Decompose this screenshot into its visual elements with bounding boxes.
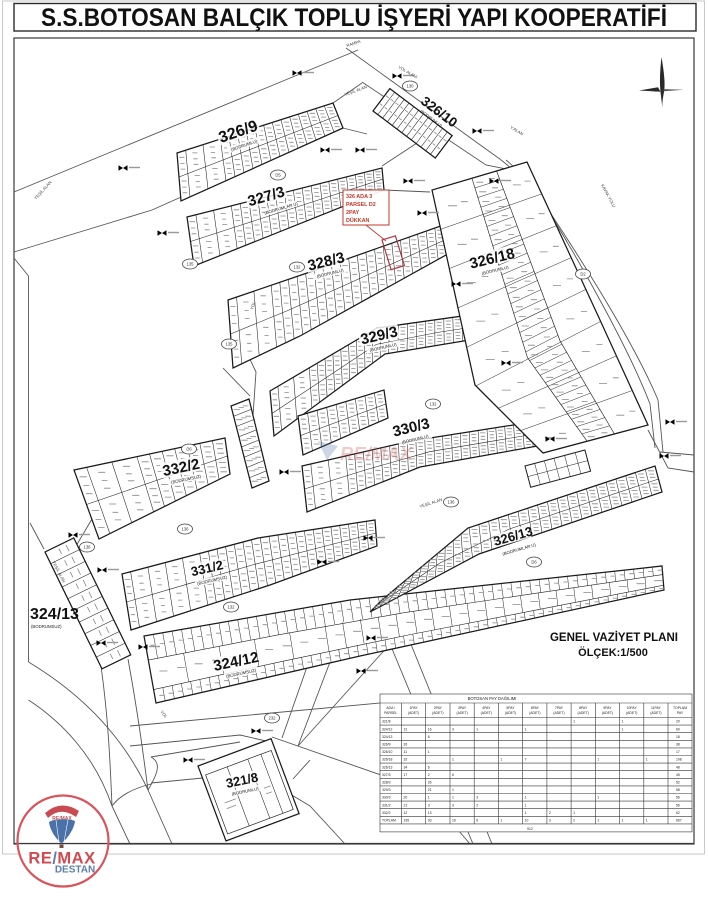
svg-text:1: 1	[500, 819, 502, 823]
svg-text:1: 1	[500, 758, 502, 762]
svg-text:32: 32	[404, 758, 408, 762]
svg-text:13: 13	[428, 811, 432, 815]
svg-text:16: 16	[428, 727, 432, 731]
svg-text:3: 3	[549, 819, 551, 823]
svg-text:(ADET): (ADET)	[432, 711, 443, 715]
svg-text:332/2: 332/2	[382, 811, 391, 815]
svg-text:12: 12	[404, 727, 408, 731]
svg-text:327/3: 327/3	[382, 773, 391, 777]
svg-text:20: 20	[676, 720, 680, 724]
svg-text:17: 17	[676, 750, 680, 754]
svg-text:D5: D5	[275, 173, 281, 178]
svg-text:(ADET): (ADET)	[650, 711, 661, 715]
svg-text:1: 1	[646, 758, 648, 762]
svg-text:324/13: 324/13	[382, 735, 392, 739]
svg-text:2: 2	[549, 811, 551, 815]
svg-text:16: 16	[452, 819, 456, 823]
svg-text:1: 1	[476, 727, 478, 731]
svg-text:(BODRUMSUZ): (BODRUMSUZ)	[31, 624, 62, 629]
svg-text:D6: D6	[186, 447, 192, 452]
svg-text:6: 6	[428, 735, 430, 739]
svg-text:11: 11	[404, 750, 408, 754]
svg-text:(ADET): (ADET)	[456, 711, 467, 715]
svg-text:3: 3	[428, 803, 430, 807]
svg-text:20: 20	[404, 796, 408, 800]
svg-text:2: 2	[428, 773, 430, 777]
svg-text:324/12: 324/12	[382, 727, 392, 731]
svg-text:ADA /: ADA /	[386, 706, 395, 710]
svg-text:6: 6	[476, 819, 478, 823]
svg-text:PAY: PAY	[677, 711, 684, 715]
svg-text:DESTAN: DESTAN	[55, 865, 95, 876]
svg-text:667: 667	[676, 819, 682, 823]
svg-text:52: 52	[676, 781, 680, 785]
svg-text:5PAY: 5PAY	[506, 706, 515, 710]
svg-text:3: 3	[476, 796, 478, 800]
svg-text:PARSEL D2: PARSEL D2	[346, 202, 376, 208]
svg-text:132: 132	[294, 265, 302, 270]
svg-text:1: 1	[525, 803, 527, 807]
svg-text:1: 1	[452, 758, 454, 762]
svg-text:130: 130	[407, 84, 415, 89]
svg-text:326/10: 326/10	[382, 750, 392, 754]
svg-text:1: 1	[597, 819, 599, 823]
svg-text:328/3: 328/3	[382, 781, 391, 785]
svg-text:17: 17	[404, 773, 408, 777]
svg-text:93: 93	[428, 819, 432, 823]
svg-text:(ADET): (ADET)	[481, 711, 492, 715]
svg-text:(ADET): (ADET)	[602, 711, 613, 715]
svg-text:326/13: 326/13	[382, 765, 392, 769]
svg-text:135: 135	[226, 342, 234, 347]
svg-text:11PAY: 11PAY	[651, 706, 662, 710]
svg-text:PARSEL: PARSEL	[384, 711, 397, 715]
svg-text:3PAY: 3PAY	[458, 706, 467, 710]
svg-text:7PAY: 7PAY	[555, 706, 564, 710]
svg-text:TOPLAM: TOPLAM	[382, 819, 396, 823]
svg-text:TOPLAM: TOPLAM	[673, 706, 687, 710]
svg-text:4PAY: 4PAY	[482, 706, 491, 710]
svg-text:62: 62	[676, 811, 680, 815]
svg-text:12: 12	[404, 811, 408, 815]
svg-text:108: 108	[676, 758, 682, 762]
svg-text:6PAY: 6PAY	[531, 706, 540, 710]
svg-text:1PAY: 1PAY	[410, 706, 419, 710]
svg-text:10: 10	[525, 819, 529, 823]
svg-text:331/2: 331/2	[382, 803, 391, 807]
svg-text:2PAY: 2PAY	[434, 706, 443, 710]
svg-text:135: 135	[187, 262, 195, 267]
svg-text:21: 21	[428, 788, 432, 792]
svg-text:9PAY: 9PAY	[603, 706, 612, 710]
svg-text:326 ADA 3: 326 ADA 3	[346, 194, 372, 200]
svg-text:34: 34	[404, 765, 408, 769]
svg-text:1: 1	[573, 811, 575, 815]
svg-text:136: 136	[182, 527, 190, 532]
svg-text:1: 1	[622, 819, 624, 823]
svg-text:912: 912	[527, 827, 533, 831]
svg-text:1: 1	[622, 727, 624, 731]
svg-text:(ADET): (ADET)	[553, 711, 564, 715]
svg-text:7: 7	[525, 758, 527, 762]
svg-text:26: 26	[428, 781, 432, 785]
svg-text:1: 1	[622, 720, 624, 724]
svg-text:3: 3	[452, 803, 454, 807]
svg-text:RE/MAX: RE/MAX	[340, 443, 414, 464]
svg-text:6: 6	[452, 773, 454, 777]
svg-text:1: 1	[597, 796, 599, 800]
svg-text:D2: D2	[580, 272, 586, 277]
svg-text:1: 1	[525, 811, 527, 815]
svg-text:232: 232	[269, 716, 277, 721]
svg-text:326/18: 326/18	[382, 758, 392, 762]
svg-text:330/3: 330/3	[382, 796, 391, 800]
svg-text:60: 60	[676, 727, 680, 731]
svg-text:136: 136	[84, 545, 92, 550]
svg-text:45: 45	[676, 773, 680, 777]
svg-text:132: 132	[430, 402, 438, 407]
svg-text:(ADET): (ADET)	[505, 711, 516, 715]
svg-text:1: 1	[646, 819, 648, 823]
svg-text:ÖLÇEK:1/500: ÖLÇEK:1/500	[578, 646, 648, 659]
svg-text:(ADET): (ADET)	[408, 711, 419, 715]
svg-text:1: 1	[525, 727, 527, 731]
svg-text:26: 26	[404, 743, 408, 747]
svg-text:1: 1	[525, 796, 527, 800]
svg-text:1: 1	[428, 750, 430, 754]
svg-text:56: 56	[676, 803, 680, 807]
svg-text:D6: D6	[531, 560, 537, 565]
svg-text:3: 3	[452, 727, 454, 731]
svg-text:132: 132	[228, 605, 236, 610]
svg-text:326/9: 326/9	[382, 743, 391, 747]
svg-text:58: 58	[676, 788, 680, 792]
svg-text:8PAY: 8PAY	[579, 706, 588, 710]
svg-text:(ADET): (ADET)	[578, 711, 589, 715]
svg-text:1: 1	[428, 796, 430, 800]
svg-text:1: 1	[452, 796, 454, 800]
svg-text:10PAY: 10PAY	[627, 706, 638, 710]
svg-text:DÜKKAN: DÜKKAN	[346, 217, 369, 224]
svg-text:321/8: 321/8	[382, 720, 391, 724]
svg-text:1: 1	[597, 758, 599, 762]
svg-text:(ADET): (ADET)	[626, 711, 637, 715]
svg-text:195: 195	[404, 819, 410, 823]
svg-text:2: 2	[476, 803, 478, 807]
svg-text:56: 56	[676, 796, 680, 800]
svg-text:1: 1	[573, 720, 575, 724]
svg-text:GENEL VAZİYET PLANI: GENEL VAZİYET PLANI	[550, 631, 678, 644]
svg-text:21: 21	[404, 803, 408, 807]
svg-text:1: 1	[452, 788, 454, 792]
svg-text:324/13: 324/13	[30, 606, 79, 623]
svg-text:2PAY: 2PAY	[346, 210, 360, 216]
svg-text:6: 6	[428, 765, 430, 769]
svg-text:136: 136	[448, 500, 456, 505]
svg-text:(ADET): (ADET)	[529, 711, 540, 715]
svg-text:2: 2	[573, 819, 575, 823]
svg-text:38: 38	[676, 743, 680, 747]
svg-text:18: 18	[676, 735, 680, 739]
svg-text:329/3: 329/3	[382, 788, 391, 792]
svg-text:48: 48	[676, 765, 680, 769]
svg-text:BOTOSAN PAY DAĞILIMI: BOTOSAN PAY DAĞILIMI	[468, 696, 517, 701]
svg-text:S.S.BOTOSAN BALÇIK TOPLU İŞYER: S.S.BOTOSAN BALÇIK TOPLU İŞYERİ YAPI KOO…	[41, 4, 667, 32]
